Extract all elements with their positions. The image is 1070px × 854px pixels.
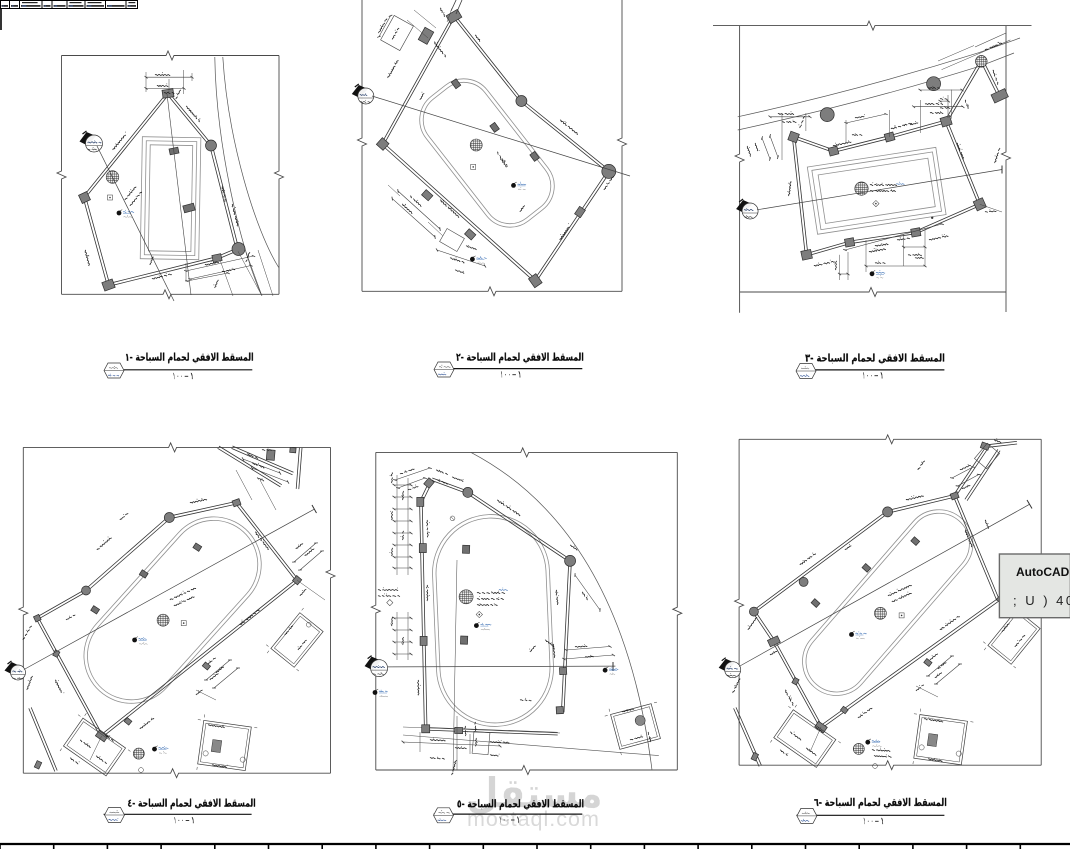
svg-text:; U ) 40: ; U ) 40 [1013,593,1070,608]
svg-text:AutoCAD S: AutoCAD S [1016,565,1070,579]
svg-text:mostaql.com: mostaql.com [467,807,600,831]
